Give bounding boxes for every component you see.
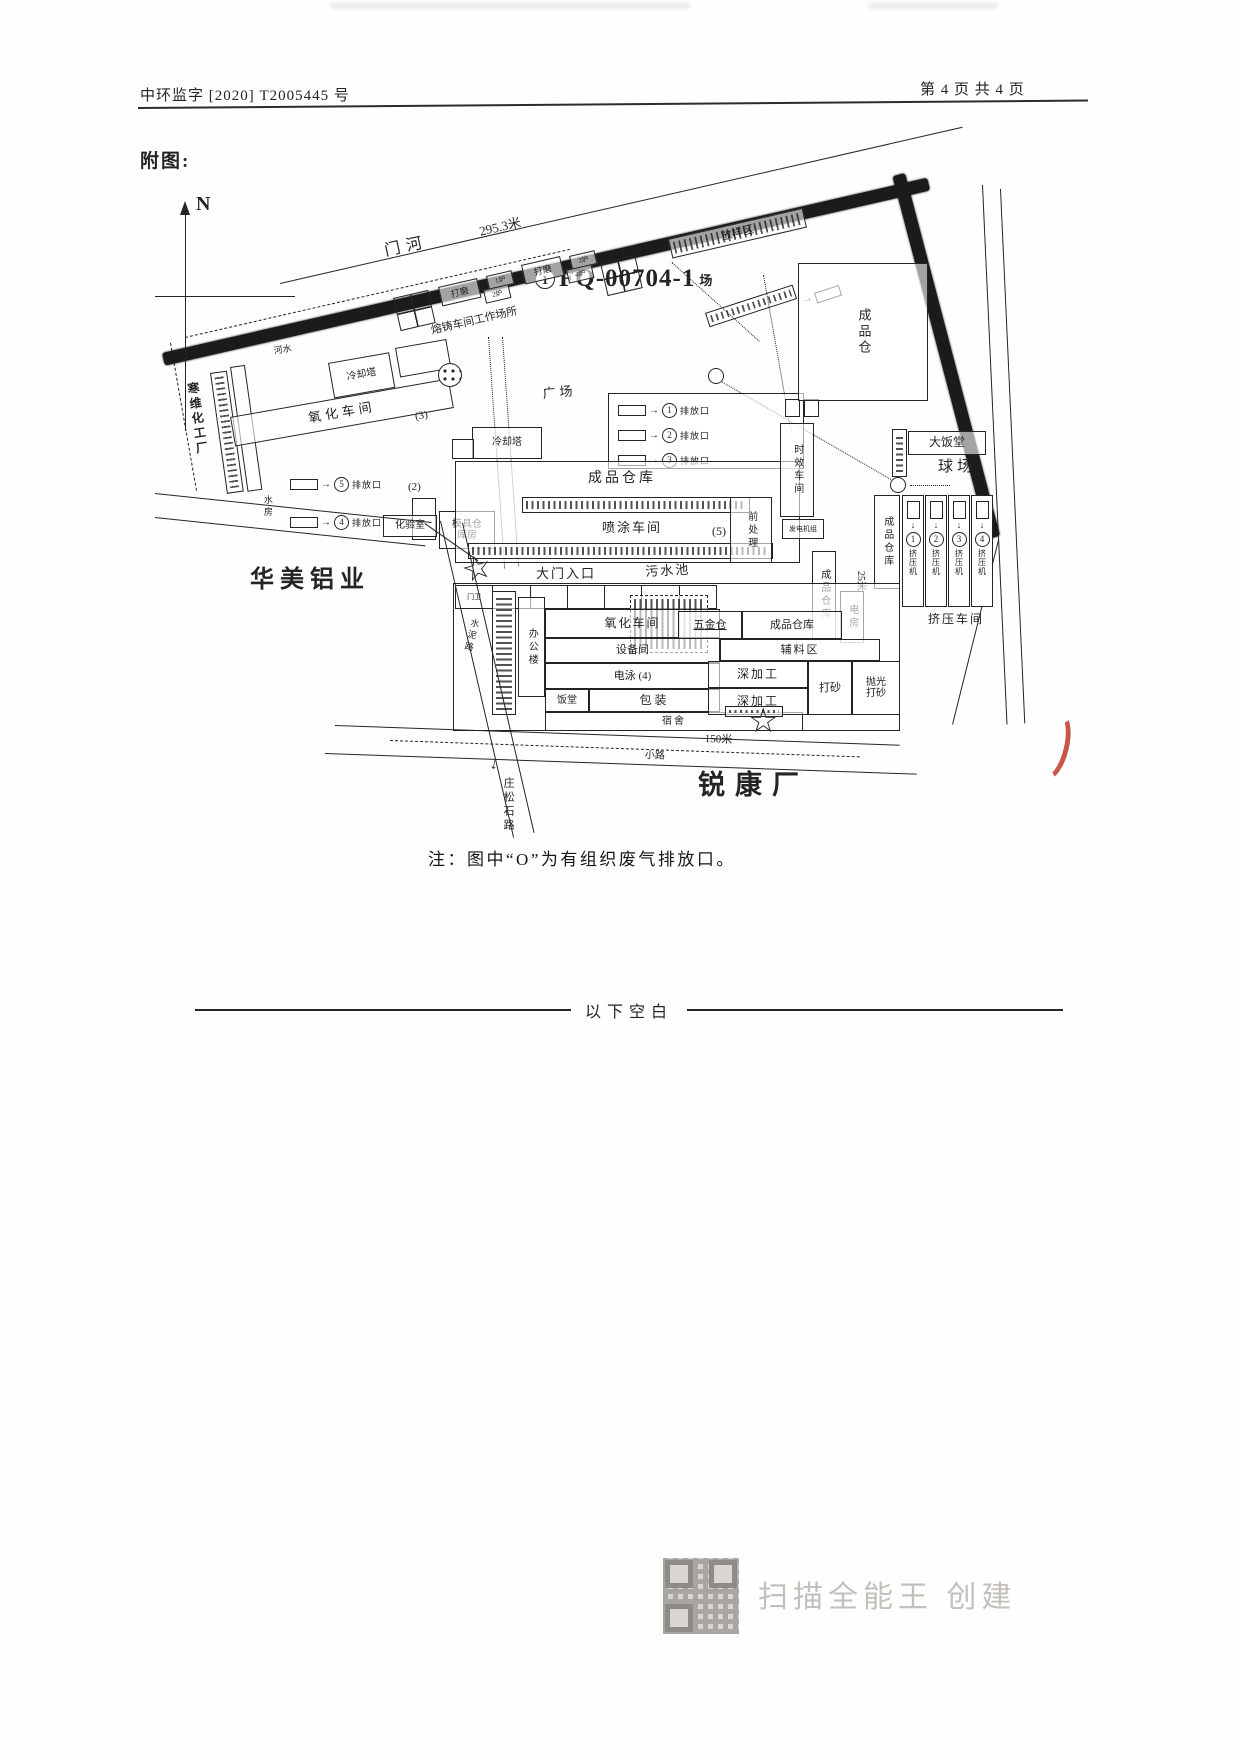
cooling-tower-mid: 冷却塔: [472, 427, 542, 459]
divider-line-left: [195, 1009, 571, 1011]
grinding-room-1: 打磨: [438, 278, 481, 306]
compass-hline: [155, 296, 295, 297]
cooling-step: [452, 439, 474, 459]
divider-line-right: [687, 1009, 1063, 1011]
river-water-label: 河水: [273, 344, 292, 357]
gate-row-cell: 门卫: [456, 586, 493, 608]
river-name-label: 门河: [383, 234, 430, 260]
workshop-num-3: (3): [414, 409, 429, 423]
dist-150m-label: 150米: [705, 733, 733, 746]
aging-square-2: [804, 399, 819, 417]
polish-sandblast-room: 抛光 打砂: [852, 661, 900, 715]
scan-smudge-top-right: [868, 3, 998, 9]
canteen: 大饭堂: [908, 431, 986, 455]
divider-text: 以下空白: [585, 998, 673, 1022]
extrusion-workshop-label: 挤压车间: [928, 613, 984, 626]
press-machine-2: ↓2挤压机: [925, 495, 947, 607]
small-vstrip: [892, 429, 907, 477]
electrophoresis-room: 电泳 (4): [545, 663, 720, 689]
generator-room: 发电机组: [782, 519, 824, 539]
aging-workshop: 时效车间: [780, 423, 814, 517]
finished-storage-building: 成品仓: [798, 263, 928, 401]
square-label: 广场: [542, 384, 577, 401]
header-doc-number: 中环监字 [2020] T2005445 号: [140, 84, 350, 105]
furnace-cluster-icon: [438, 363, 462, 387]
dining-room: 饭堂: [545, 689, 589, 712]
small-path-label: 小路: [645, 750, 665, 762]
south-road-dash: [390, 740, 860, 757]
pretreatment-room: 前处理: [730, 497, 772, 563]
building-num-2: (2): [408, 481, 421, 493]
equipment-room: 设备间: [545, 638, 720, 663]
zhuangsong-road-label: 庄松石路: [502, 777, 514, 833]
west-corridor: [492, 591, 516, 715]
sandblast-room: 打砂: [808, 661, 852, 715]
scan-smudge-top: [330, 2, 690, 9]
header-page-number: 第 4 页 共 4 页: [920, 78, 1025, 99]
compass-arrowhead: [180, 201, 190, 215]
site-plan-map: N门河295.3米1FQ-00704-1场放样区→寒维化工厂河水冷却塔氧化车间(…: [140, 165, 1040, 865]
huamei-aluminum-label: 华美铝业: [250, 567, 370, 593]
outlet-4: →4排放口: [290, 515, 382, 530]
aux-material-area: 辅料区: [720, 639, 880, 661]
qr-finder-icon: [709, 1560, 737, 1588]
finished-warehouse-vstrip-1: 成品仓库: [874, 495, 900, 589]
sewage-pool-label: 污水池: [645, 563, 691, 580]
compass-vline: [185, 209, 186, 431]
press-machine-1: ↓1挤压机: [902, 495, 924, 607]
paint-line-2: [468, 543, 773, 559]
workshop-num-5: (5): [712, 525, 726, 538]
compass-n-label: N: [196, 193, 210, 215]
press-machine-3: ↓3挤压机: [948, 495, 970, 607]
outlet-2: →2排放口: [618, 428, 710, 443]
ruikang-factory-label: 锐康厂: [698, 771, 809, 801]
path-5: [910, 485, 950, 486]
deep-processing-1: 深加工: [708, 661, 808, 688]
finished-warehouse-mid: 成品仓库: [588, 471, 656, 486]
press-machine-4: ↓4挤压机: [971, 495, 993, 607]
map-note: 注：图中“O”为有组织废气排放口。: [428, 845, 736, 870]
spray-workshop: 喷涂车间: [602, 521, 662, 535]
camscanner-qr-icon: [663, 1558, 739, 1634]
ball-court-label: 球场: [938, 459, 976, 476]
paint-line-1: [522, 497, 750, 513]
junction-star-south: ☆: [748, 705, 778, 739]
blank-below-divider: 以下空白: [195, 998, 1063, 1022]
aging-square-1: [785, 399, 800, 417]
outlet-1: →1排放口: [618, 403, 710, 418]
office-building: 办公楼: [518, 597, 545, 697]
finished-warehouse-lower: 成品仓库: [742, 611, 842, 639]
casting-workshop-label: 熔铸车间工作场所: [430, 305, 518, 337]
qr-finder-icon: [665, 1560, 693, 1588]
gate-row-cell: [568, 586, 605, 608]
staging-area: 放样区: [668, 208, 807, 259]
packaging-room: 包装: [589, 689, 720, 712]
outlet-5: →5排放口: [290, 477, 382, 492]
scanned-document-page: 中环监字 [2020] T2005445 号 第 4 页 共 4 页 附图: N…: [0, 0, 1239, 1754]
path-node-2: [890, 477, 906, 493]
path-node-1: [708, 368, 724, 384]
camscanner-watermark: 扫描全能王 创建: [758, 1572, 1016, 1616]
river-length-label: 295.3米: [478, 216, 522, 239]
hardware-warehouse: 五金仓: [678, 611, 742, 639]
water-room: 水房: [262, 495, 272, 519]
qr-finder-icon: [665, 1604, 693, 1632]
gate-entrance-label: 大门入口: [536, 567, 596, 581]
boundary-dashed: [185, 249, 570, 338]
